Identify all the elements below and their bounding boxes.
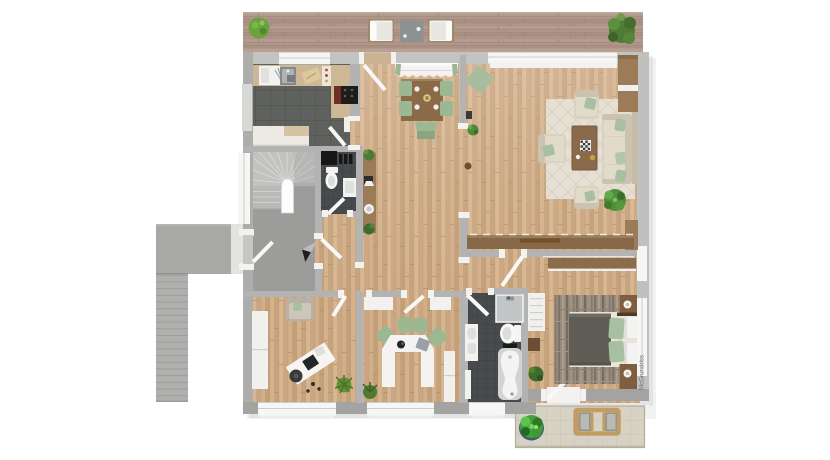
svg-text:McGrundriss: McGrundriss	[639, 355, 646, 390]
